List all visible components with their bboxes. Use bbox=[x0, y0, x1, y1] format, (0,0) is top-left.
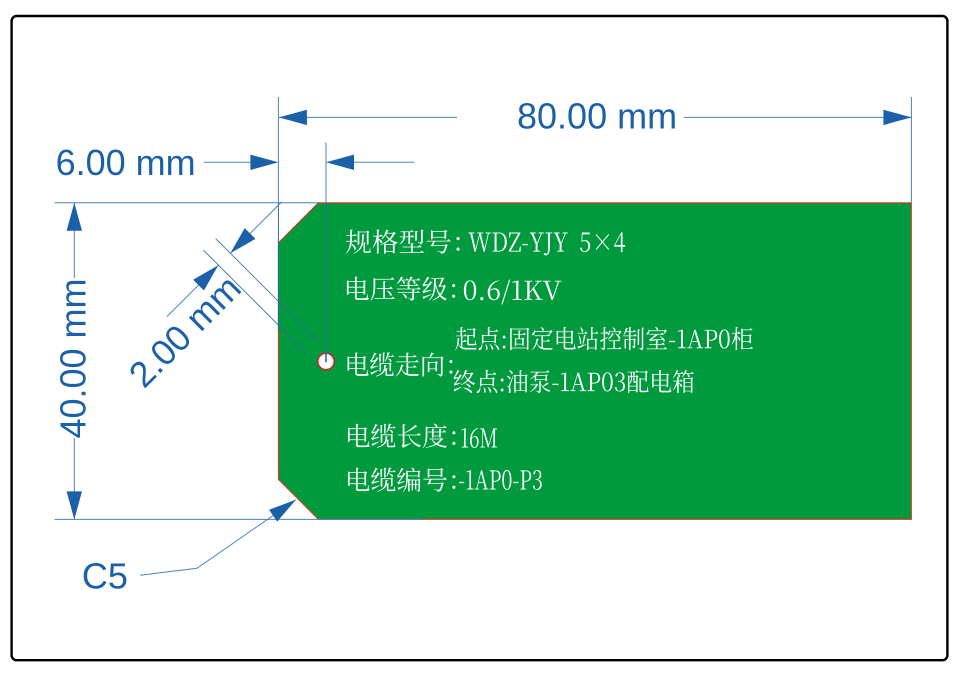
svg-text:2.00 mm: 2.00 mm bbox=[121, 267, 249, 395]
svg-text:80.00 mm: 80.00 mm bbox=[517, 96, 677, 137]
svg-text:6.00 mm: 6.00 mm bbox=[56, 142, 196, 183]
svg-text:C5: C5 bbox=[82, 556, 128, 597]
svg-text:40.00 mm: 40.00 mm bbox=[52, 278, 93, 438]
